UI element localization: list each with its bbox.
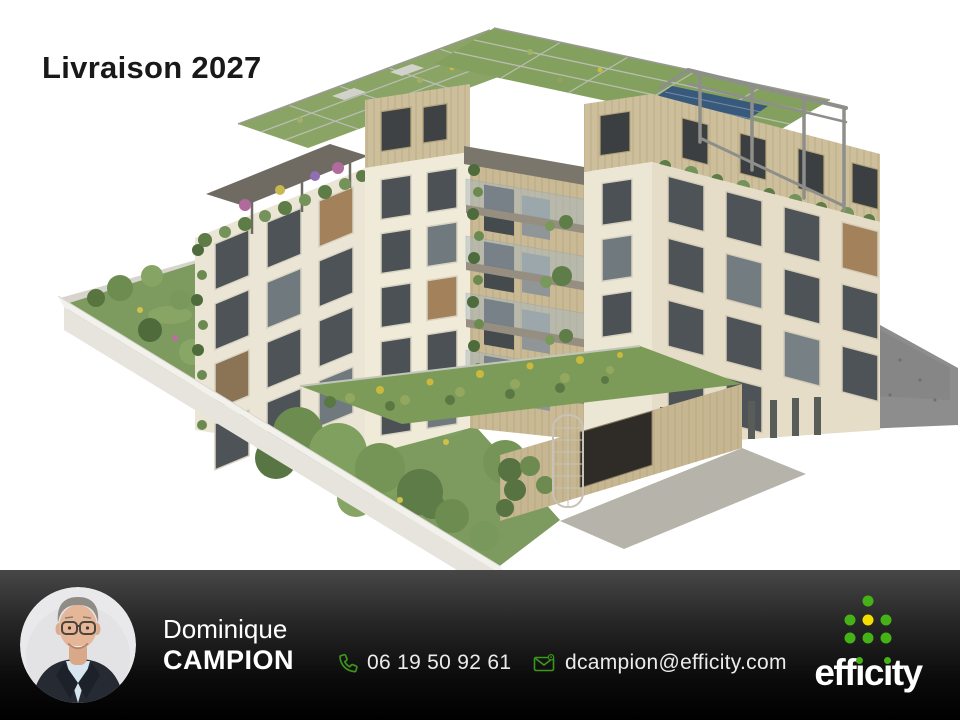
efficity-logo: effıcıty bbox=[794, 594, 942, 693]
agent-last-name: CAMPION bbox=[163, 645, 294, 676]
agent-photo bbox=[20, 587, 136, 703]
efficity-dots-icon bbox=[840, 594, 896, 644]
building-rendering bbox=[0, 0, 960, 575]
phone-contact: 06 19 50 92 61 bbox=[337, 651, 511, 675]
efficity-wordmark: effıcıty bbox=[794, 653, 942, 693]
delivery-date-title: Livraison 2027 bbox=[42, 50, 262, 86]
email-contact: dcampion@efficity.com bbox=[533, 651, 787, 675]
logo-i-dot bbox=[856, 657, 863, 664]
envelope-icon bbox=[533, 654, 556, 672]
phone-number: 06 19 50 92 61 bbox=[367, 651, 511, 675]
email-address: dcampion@efficity.com bbox=[565, 651, 787, 675]
logo-i-dot bbox=[884, 657, 891, 664]
agent-first-name: Dominique bbox=[163, 614, 294, 645]
agent-banner: Dominique CAMPION 06 19 50 92 61 dcampio… bbox=[0, 570, 960, 720]
agent-portrait-illustration bbox=[20, 587, 136, 703]
phone-icon bbox=[337, 653, 358, 674]
flyer-page: Livraison 2027 bbox=[0, 0, 960, 720]
agent-name: Dominique CAMPION bbox=[163, 614, 294, 676]
